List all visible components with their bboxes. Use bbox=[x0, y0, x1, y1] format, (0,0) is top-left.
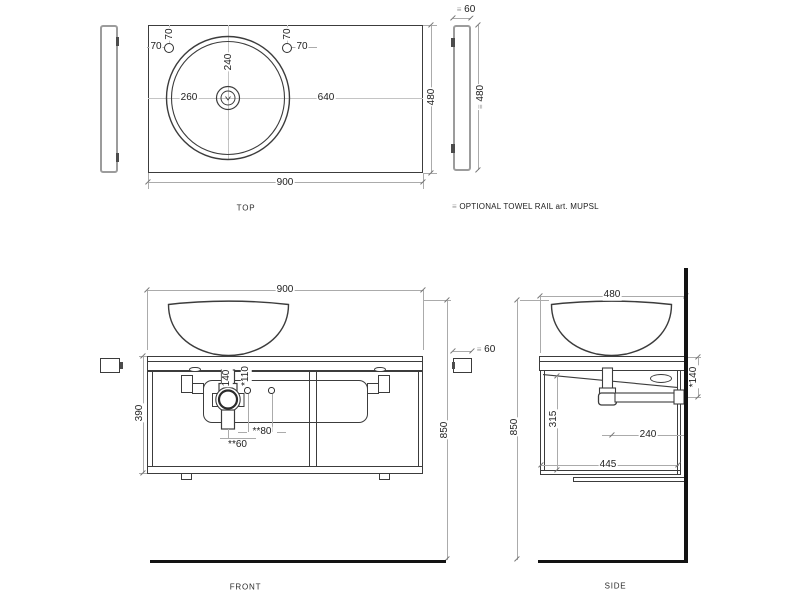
rail-clip bbox=[452, 362, 455, 369]
tap-hole-left bbox=[164, 43, 174, 53]
fixing-hole bbox=[268, 387, 275, 394]
leader-line bbox=[248, 394, 249, 432]
basin-to-right-dim: 640 bbox=[317, 93, 336, 104]
towel-rail-side-profile bbox=[573, 477, 574, 482]
basin-from-back-dim: 240 bbox=[223, 53, 234, 72]
towel-rail-hatch-icon: ≡ bbox=[452, 202, 457, 211]
floor-line bbox=[150, 560, 446, 563]
hole-drop-dim: *110 bbox=[241, 365, 252, 387]
front-total-height-dim: 850 bbox=[440, 421, 451, 440]
top-view-label: TOP bbox=[237, 204, 256, 213]
side-rail-thickness-dim: ≡ 60 bbox=[476, 345, 497, 356]
tap-left-vertical-dim: 70 bbox=[164, 27, 175, 40]
wall-bracket-right-step bbox=[367, 383, 379, 394]
wall-bracket-right bbox=[378, 375, 390, 393]
towel-rail-side-profile bbox=[573, 481, 685, 482]
fixing-slot-left bbox=[189, 367, 201, 373]
cabinet-depth-dim: 445 bbox=[599, 459, 618, 470]
rail-thickness-dim: ≡ 60 bbox=[456, 5, 477, 16]
siphon-trap-side bbox=[596, 368, 686, 406]
wall-bracket-left-step bbox=[192, 383, 204, 394]
trap-drop-dim: 140 bbox=[221, 369, 232, 388]
trap-to-wall-dim: 240 bbox=[639, 429, 658, 440]
extension-line bbox=[423, 290, 424, 350]
rail-clip bbox=[116, 153, 120, 162]
tap-right-horizontal-dim: 70 bbox=[295, 41, 308, 52]
rail-clip bbox=[116, 37, 120, 46]
leader-line bbox=[228, 429, 229, 438]
tick bbox=[468, 15, 474, 21]
outlet-drop-dim: *140 bbox=[688, 366, 699, 389]
front-width-dim: 900 bbox=[276, 285, 295, 296]
cabinet-bottom-line bbox=[540, 470, 681, 471]
dim-line bbox=[453, 351, 472, 352]
cabinet-inner-side bbox=[418, 371, 419, 466]
fixing-hole bbox=[244, 387, 251, 394]
tick bbox=[514, 556, 520, 562]
cabinet-inner-side bbox=[152, 371, 153, 466]
tap-hole-right bbox=[282, 43, 292, 53]
side-total-height-dim: 850 bbox=[509, 418, 520, 437]
cabinet-bottom-line bbox=[540, 474, 681, 475]
side-view-label: SIDE bbox=[605, 582, 627, 591]
legend-note: ≡ OPTIONAL TOWEL RAIL art. MUPSL bbox=[452, 202, 599, 211]
towel-rail-hatch-icon: ≡ bbox=[457, 5, 462, 14]
trap-to-hole-dim: **60 bbox=[227, 440, 248, 451]
front-view-label: FRONT bbox=[230, 582, 262, 591]
towel-rail-end-front bbox=[100, 358, 120, 373]
basin-from-left-dim: 260 bbox=[180, 93, 199, 104]
cabinet-height-dim: 390 bbox=[134, 404, 145, 423]
wall-line bbox=[684, 268, 688, 562]
interior-height-dim: 315 bbox=[548, 409, 559, 428]
extension-line bbox=[520, 300, 549, 301]
towel-rail-top-right bbox=[453, 25, 471, 171]
towel-rail-hatch-icon: ≡ bbox=[477, 345, 482, 354]
basin-bowl-side bbox=[550, 299, 673, 358]
rail-clip bbox=[451, 144, 455, 153]
extension-line bbox=[147, 290, 148, 350]
basin-bowl-front bbox=[167, 299, 290, 358]
rail-clip bbox=[120, 362, 123, 369]
counter-edge-line bbox=[539, 361, 687, 362]
towel-rail-top-left bbox=[100, 25, 118, 173]
tap-right-vertical-dim: 70 bbox=[283, 27, 294, 40]
side-depth-dim: 480 bbox=[603, 290, 622, 301]
fixing-slot-right bbox=[374, 367, 386, 373]
counter-depth-dim: 480 bbox=[426, 88, 437, 107]
counter-edge-line bbox=[147, 361, 423, 362]
cabinet-foot bbox=[181, 473, 192, 480]
rail-clip bbox=[451, 38, 455, 47]
hole-spacing-dim: **80 bbox=[252, 426, 273, 437]
towel-rail-end-side bbox=[453, 358, 472, 373]
tap-left-horizontal-dim: 70 bbox=[149, 41, 162, 52]
cabinet-side-edge bbox=[540, 371, 541, 475]
cabinet-foot bbox=[379, 473, 390, 480]
towel-rail-side-profile bbox=[573, 477, 685, 478]
dim-line bbox=[277, 432, 286, 433]
floor-line bbox=[538, 560, 688, 563]
extension-line bbox=[540, 296, 541, 353]
counter-width-dim: 900 bbox=[276, 177, 295, 188]
dim-line bbox=[238, 432, 247, 433]
rail-length-dim: ≡ 480 bbox=[476, 84, 487, 110]
towel-rail-hatch-icon: ≡ bbox=[476, 104, 485, 109]
legend-text: OPTIONAL TOWEL RAIL art. MUPSL bbox=[459, 202, 599, 211]
tick bbox=[475, 167, 481, 173]
technical-drawing-vanity-unit: 70 70 70 70 240 260 640 480 900 TOP ≡ 60 bbox=[0, 0, 800, 600]
